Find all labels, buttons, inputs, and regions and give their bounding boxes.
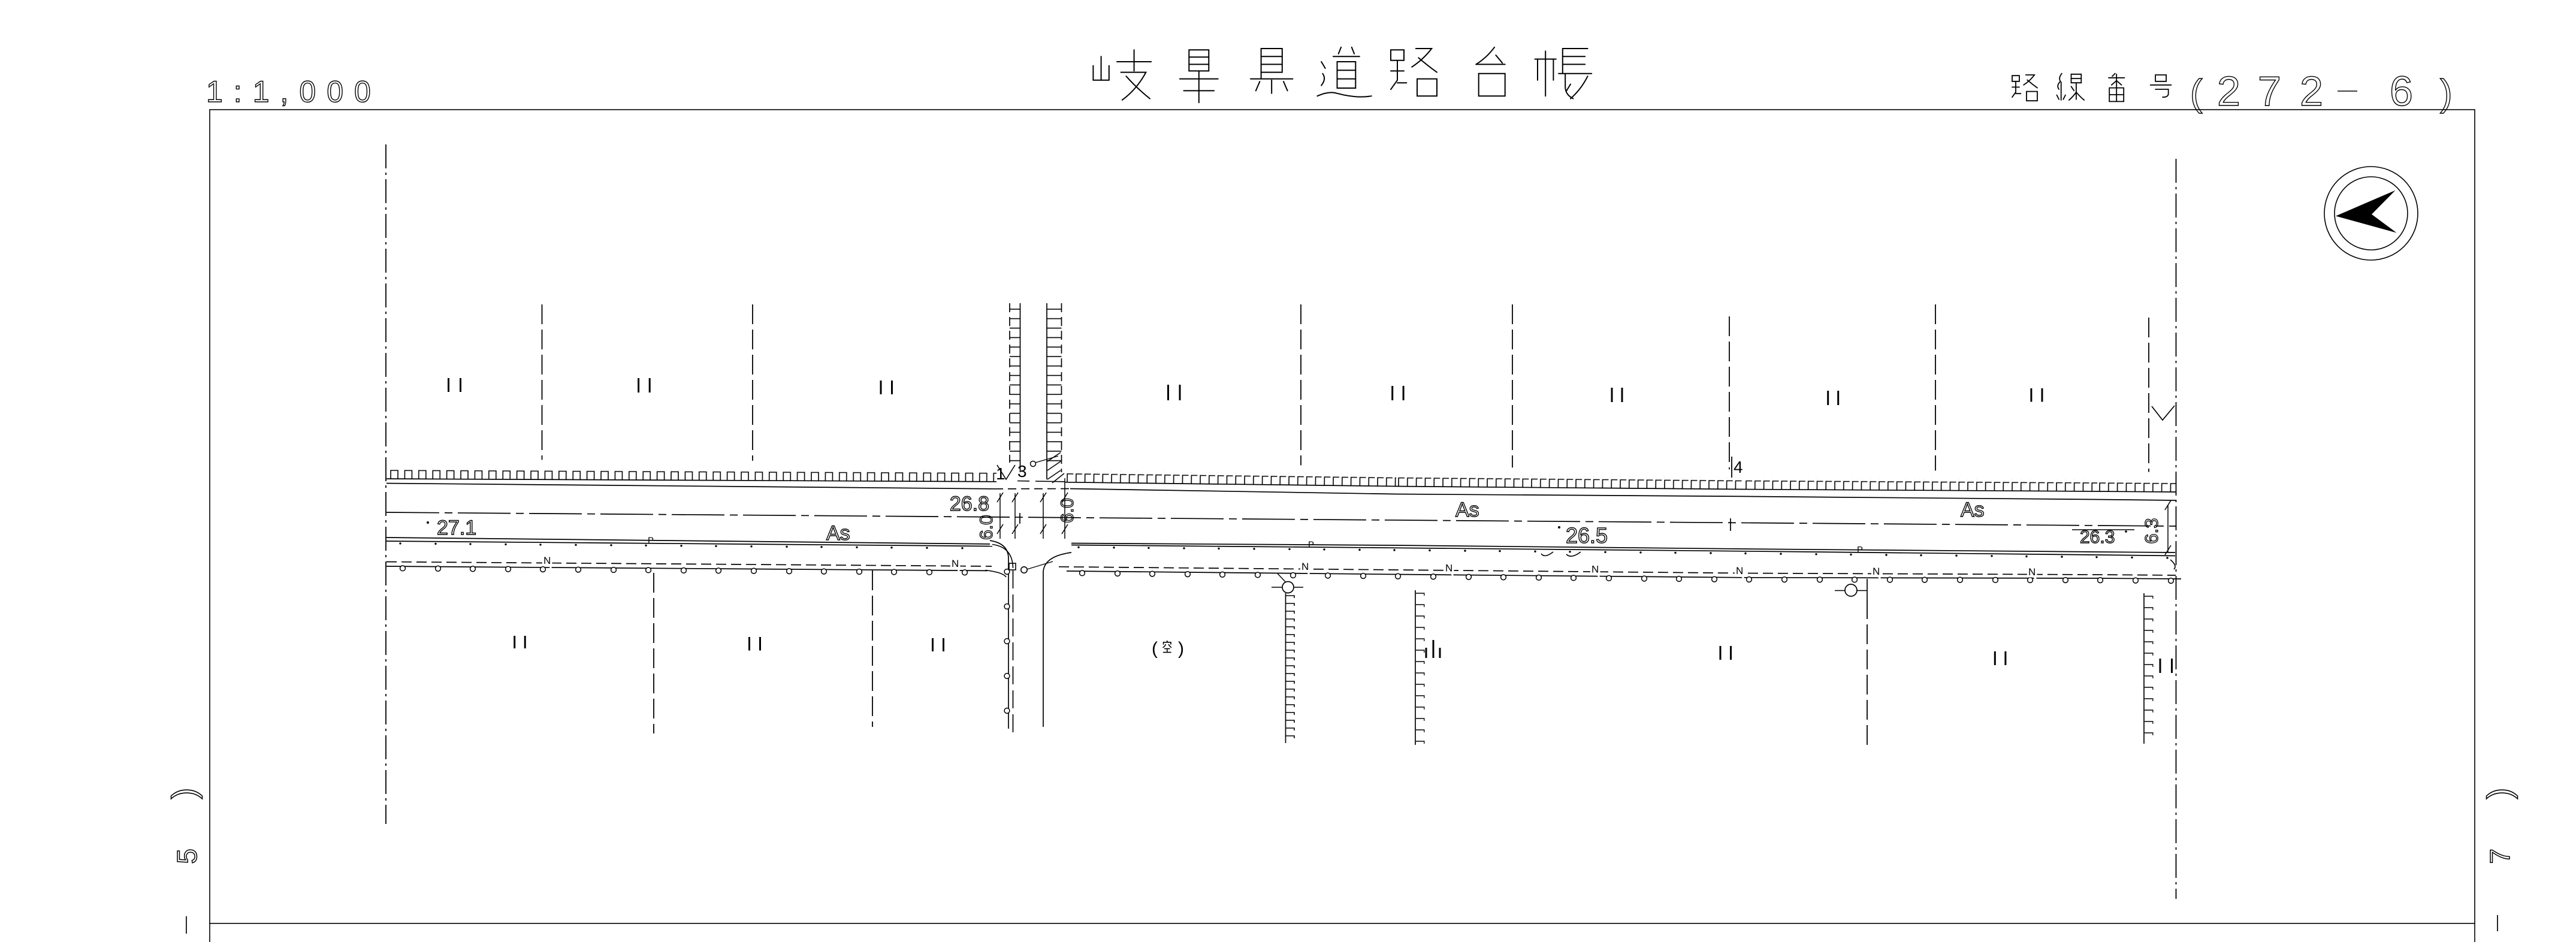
- svg-text:7: 7: [2484, 849, 2515, 864]
- svg-text:6.0: 6.0: [1058, 498, 1077, 523]
- svg-text:N: N: [1873, 566, 1880, 577]
- svg-text:As: As: [1455, 499, 1479, 521]
- svg-text:3: 3: [1017, 462, 1027, 481]
- svg-text:): ): [2480, 788, 2518, 799]
- svg-text:1:1,000: 1:1,000: [206, 75, 382, 108]
- svg-text:7: 7: [2258, 68, 2281, 114]
- svg-text:2: 2: [2300, 68, 2323, 114]
- svg-text:1: 1: [996, 464, 1005, 483]
- svg-text:26.8: 26.8: [950, 493, 989, 515]
- svg-text:N: N: [2028, 566, 2036, 578]
- svg-text:P: P: [1308, 540, 1314, 550]
- svg-text:P: P: [1857, 545, 1863, 555]
- svg-text:6.3: 6.3: [2141, 518, 2162, 544]
- svg-text:(: (: [2190, 73, 2203, 114]
- svg-text:27.1: 27.1: [437, 517, 476, 539]
- svg-text:N: N: [952, 558, 959, 569]
- svg-text:26.3: 26.3: [2080, 527, 2115, 547]
- svg-text:6.0: 6.0: [977, 515, 996, 540]
- svg-text:): ): [165, 788, 203, 799]
- svg-text:As: As: [826, 522, 850, 545]
- svg-text:4: 4: [1734, 458, 1743, 476]
- svg-text:N: N: [1591, 564, 1599, 575]
- svg-text:5: 5: [171, 849, 203, 864]
- svg-text:P: P: [648, 535, 654, 545]
- svg-text:N: N: [1736, 565, 1743, 576]
- svg-text:As: As: [1961, 499, 1985, 521]
- svg-text:(: (: [1152, 639, 1158, 659]
- svg-text:N: N: [543, 555, 551, 566]
- svg-text:): ): [1178, 639, 1184, 659]
- svg-text:N: N: [1445, 562, 1452, 573]
- svg-text:26.5: 26.5: [1566, 523, 1608, 548]
- svg-text:): ): [2440, 73, 2453, 114]
- svg-text:2: 2: [2217, 68, 2240, 114]
- svg-text:6: 6: [2390, 68, 2413, 114]
- svg-text:N: N: [1301, 561, 1309, 572]
